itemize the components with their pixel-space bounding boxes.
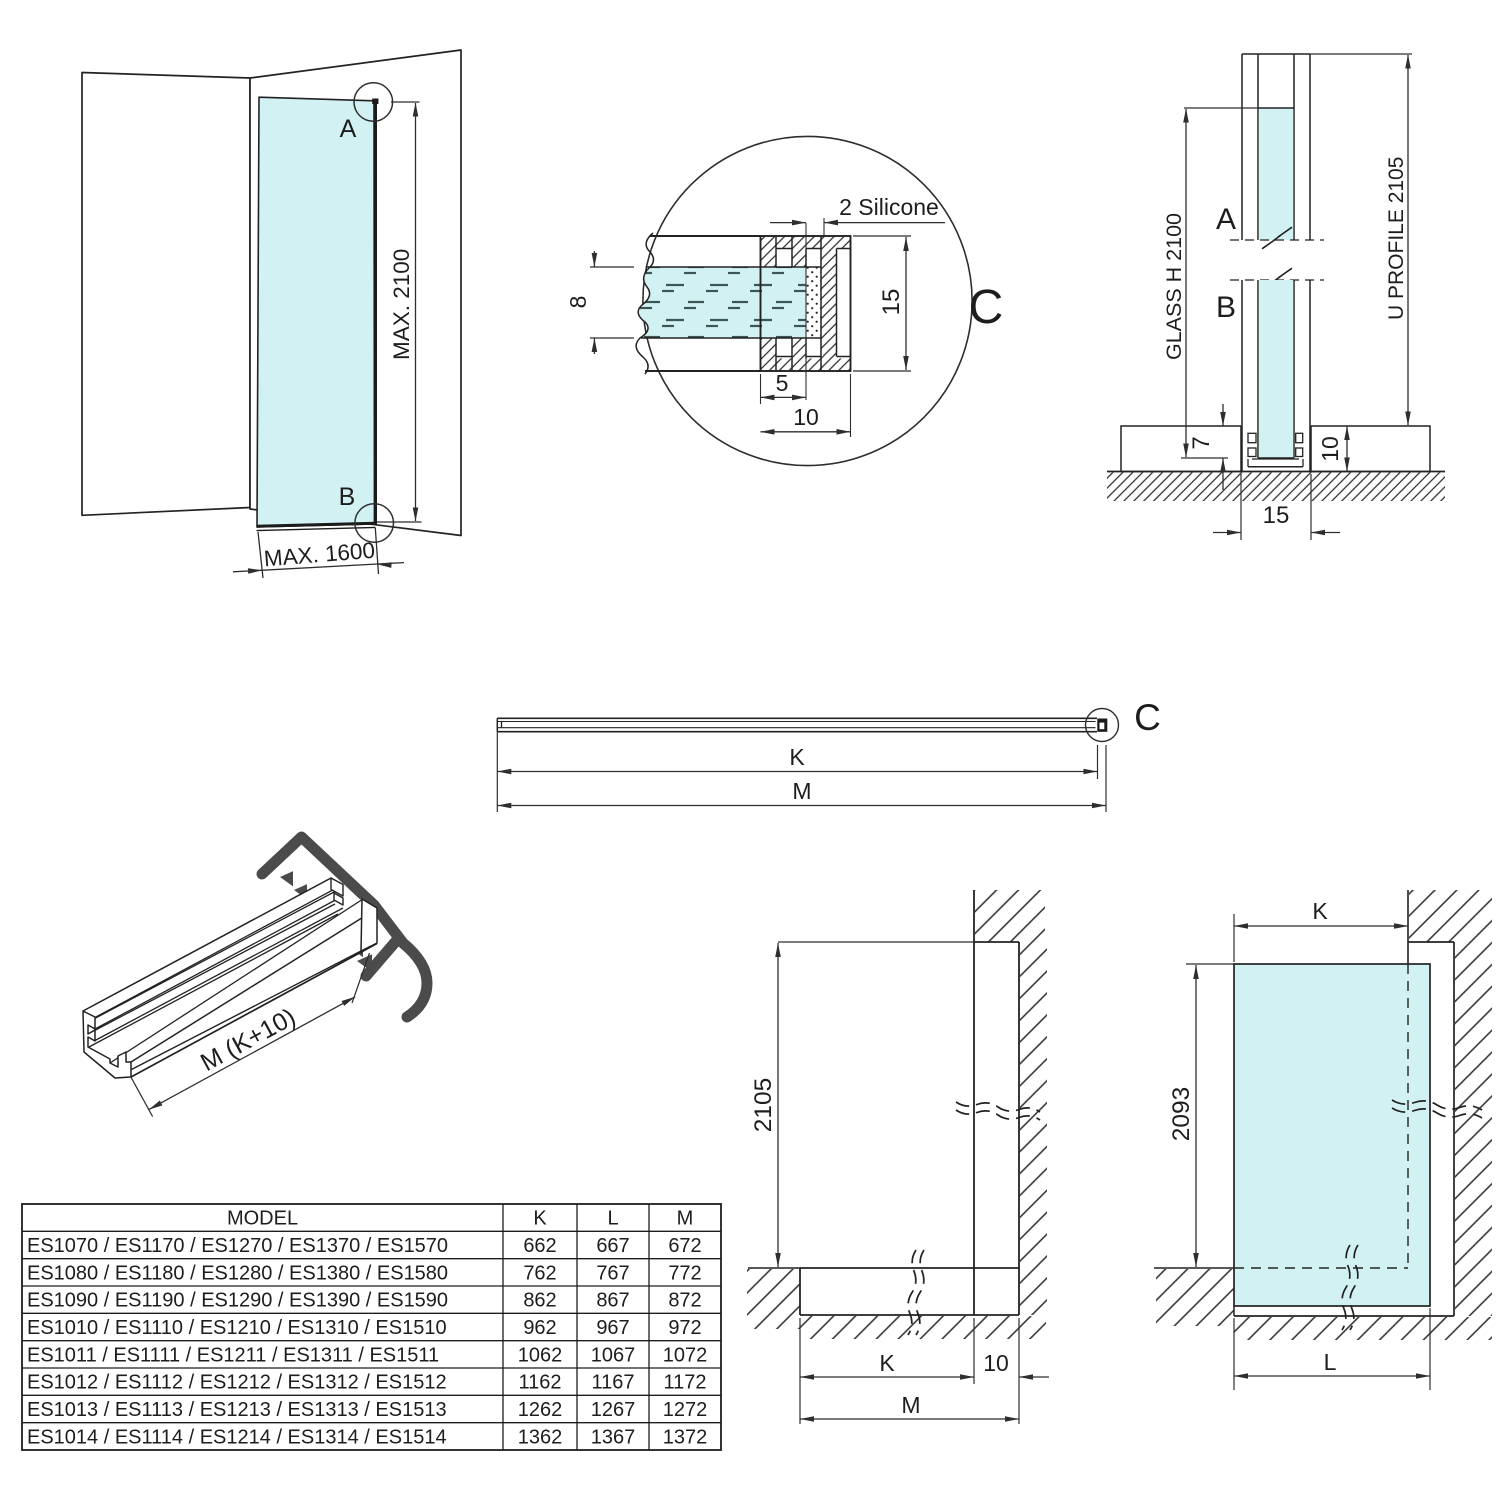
svg-text:1367: 1367 — [591, 1426, 636, 1448]
svg-text:2093: 2093 — [1168, 1087, 1195, 1142]
svg-text:2105: 2105 — [750, 1078, 777, 1133]
svg-text:972: 972 — [668, 1317, 701, 1339]
svg-text:5: 5 — [776, 370, 789, 396]
svg-text:1167: 1167 — [591, 1372, 634, 1394]
svg-text:1362: 1362 — [518, 1426, 563, 1448]
svg-text:K: K — [879, 1350, 895, 1376]
svg-text:A: A — [1216, 203, 1236, 236]
svg-text:K: K — [789, 744, 805, 770]
svg-text:ES1090 / ES1190 / ES1290 / ES1: ES1090 / ES1190 / ES1290 / ES1390 / ES15… — [27, 1290, 448, 1312]
svg-text:U PROFILE 2105: U PROFILE 2105 — [1385, 157, 1408, 320]
svg-text:GLASS H 2100: GLASS H 2100 — [1162, 213, 1186, 360]
svg-text:1162: 1162 — [518, 1372, 561, 1394]
svg-text:1372: 1372 — [663, 1426, 708, 1448]
svg-text:762: 762 — [523, 1262, 556, 1284]
svg-text:15: 15 — [878, 289, 905, 316]
svg-text:672: 672 — [668, 1235, 701, 1257]
svg-text:ES1014 / ES1114 / ES1214 / ES1: ES1014 / ES1114 / ES1214 / ES1314 / ES15… — [27, 1426, 447, 1448]
svg-text:K: K — [533, 1208, 547, 1230]
svg-text:A: A — [340, 115, 357, 143]
svg-text:B: B — [339, 483, 356, 511]
svg-text:1262: 1262 — [518, 1399, 563, 1421]
svg-text:10: 10 — [983, 1350, 1009, 1376]
svg-text:M: M — [677, 1208, 694, 1230]
svg-text:1272: 1272 — [663, 1399, 708, 1421]
svg-text:667: 667 — [596, 1235, 629, 1257]
svg-text:C: C — [1134, 697, 1161, 738]
svg-text:1267: 1267 — [591, 1399, 636, 1421]
svg-text:ES1013 / ES1113 / ES1213 / ES1: ES1013 / ES1113 / ES1213 / ES1313 / ES15… — [27, 1399, 447, 1421]
svg-text:C: C — [969, 281, 1004, 334]
svg-text:MODEL: MODEL — [227, 1208, 298, 1230]
svg-text:867: 867 — [596, 1290, 629, 1312]
svg-text:ES1012 / ES1112 / ES1212 / ES1: ES1012 / ES1112 / ES1212 / ES1312 / ES15… — [27, 1372, 447, 1394]
svg-text:L: L — [1324, 1349, 1337, 1375]
svg-text:10: 10 — [1317, 436, 1343, 462]
svg-text:767: 767 — [596, 1262, 629, 1284]
svg-text:ES1011 / ES1111 / ES1211 / ES1: ES1011 / ES1111 / ES1211 / ES1311 / ES15… — [27, 1344, 439, 1366]
svg-text:B: B — [1216, 291, 1236, 324]
svg-text:ES1080 / ES1180 / ES1280 / ES1: ES1080 / ES1180 / ES1280 / ES1380 / ES15… — [27, 1262, 448, 1284]
svg-text:K: K — [1312, 898, 1328, 924]
svg-text:772: 772 — [668, 1262, 701, 1284]
svg-text:ES1010 / ES1110 / ES1210 / ES1: ES1010 / ES1110 / ES1210 / ES1310 / ES15… — [27, 1317, 447, 1339]
svg-text:10: 10 — [793, 404, 819, 430]
svg-text:1172: 1172 — [663, 1372, 706, 1394]
svg-text:1067: 1067 — [591, 1344, 636, 1366]
svg-text:862: 862 — [523, 1290, 556, 1312]
svg-text:M: M — [901, 1392, 920, 1418]
svg-text:M: M — [792, 778, 811, 804]
svg-text:662: 662 — [523, 1235, 556, 1257]
svg-text:967: 967 — [596, 1317, 629, 1339]
svg-text:8: 8 — [565, 296, 591, 309]
svg-text:1062: 1062 — [518, 1344, 563, 1366]
svg-text:MAX. 2100: MAX. 2100 — [389, 249, 414, 360]
svg-text:2 Silicone: 2 Silicone — [839, 194, 939, 220]
svg-text:962: 962 — [523, 1317, 556, 1339]
svg-text:872: 872 — [668, 1290, 701, 1312]
svg-text:L: L — [607, 1208, 618, 1230]
svg-text:1072: 1072 — [663, 1344, 708, 1366]
svg-text:15: 15 — [1263, 502, 1290, 529]
svg-text:7: 7 — [1188, 436, 1215, 449]
svg-text:ES1070 / ES1170 / ES1270 / ES1: ES1070 / ES1170 / ES1270 / ES1370 / ES15… — [27, 1235, 448, 1257]
